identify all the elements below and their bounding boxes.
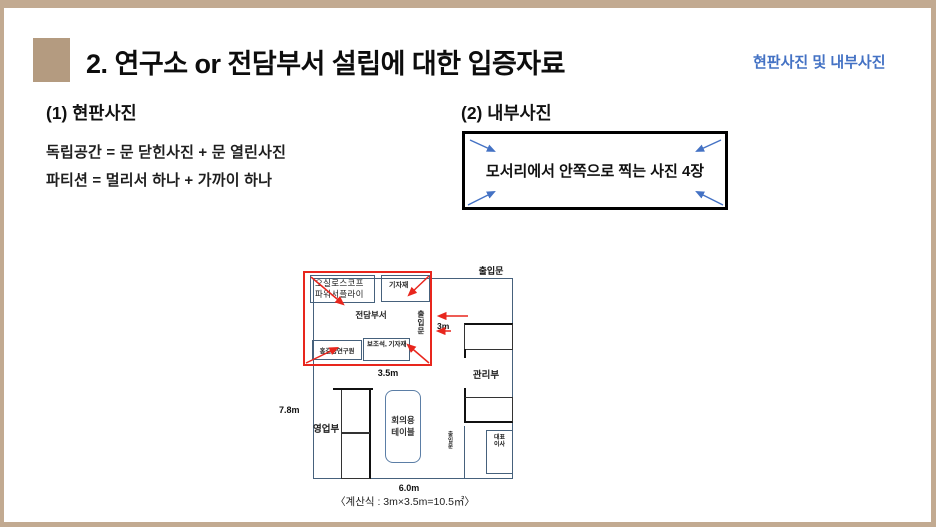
room-depth-label: 3m <box>437 321 449 331</box>
inner-partition-line <box>464 426 466 479</box>
desk-tick <box>464 349 466 358</box>
formula-caption: 〈계산식 : 3m×3.5m=10.5㎡〉 <box>330 494 480 509</box>
dedicated-room-door-label: 출입문 <box>417 310 425 336</box>
shelf-top-bar <box>333 388 373 391</box>
assistant-seat-box: 보조석, 기자재 <box>363 338 410 361</box>
shelf-divider <box>342 432 370 434</box>
sales-partition-shelf <box>341 389 371 479</box>
ceo-office-box: 대표이사 <box>486 430 513 474</box>
meeting-table-label: 회의용 테이블 <box>388 415 418 437</box>
inner-door-label: 출입문 <box>446 431 452 449</box>
presentation-slide: 2. 연구소 or 전담부서 설립에 대한 입증자료 현판사진 및 내부사진 (… <box>0 0 936 527</box>
office-width-label: 6.0m <box>379 483 439 493</box>
equipment-box: 기자재 <box>381 275 430 302</box>
management-desk <box>464 323 513 350</box>
ceo-area-desk <box>464 397 513 423</box>
title-bullet-square <box>33 38 70 82</box>
entrance-top-label: 출입문 <box>466 264 516 277</box>
oscilloscope-box: 오실로스코프 파워서플라이 <box>310 275 375 303</box>
rule-independent-space: 독립공간 = 문 닫힌사진 + 문 열린사진 <box>46 141 286 162</box>
office-height-label: 7.8m <box>279 405 300 415</box>
interior-photo-box: 모서리에서 안쪽으로 찍는 사진 4장 <box>462 131 728 210</box>
dedicated-room-label: 전담부서 <box>340 309 402 321</box>
ceo-label: 대표이사 <box>492 435 507 449</box>
researcher-box: 홍길동연구원 <box>312 340 362 360</box>
slide-title: 2. 연구소 or 전담부서 설립에 대한 입증자료 <box>86 42 565 81</box>
management-label: 관리부 <box>460 367 512 381</box>
signboard-section-heading: (1) 현판사진 <box>46 100 137 125</box>
desk-tick <box>464 388 466 397</box>
interior-box-note: 모서리에서 안쪽으로 찍는 사진 4장 <box>486 160 704 181</box>
corner-note: 현판사진 및 내부사진 <box>753 51 886 72</box>
meeting-table: 회의용 테이블 <box>385 390 421 463</box>
sales-label: 영업부 <box>313 421 339 435</box>
interior-section-heading: (2) 내부사진 <box>461 100 552 125</box>
rule-partition: 파티션 = 멀리서 하나 + 가까이 하나 <box>46 169 272 190</box>
room-width-label: 3.5m <box>358 368 418 378</box>
